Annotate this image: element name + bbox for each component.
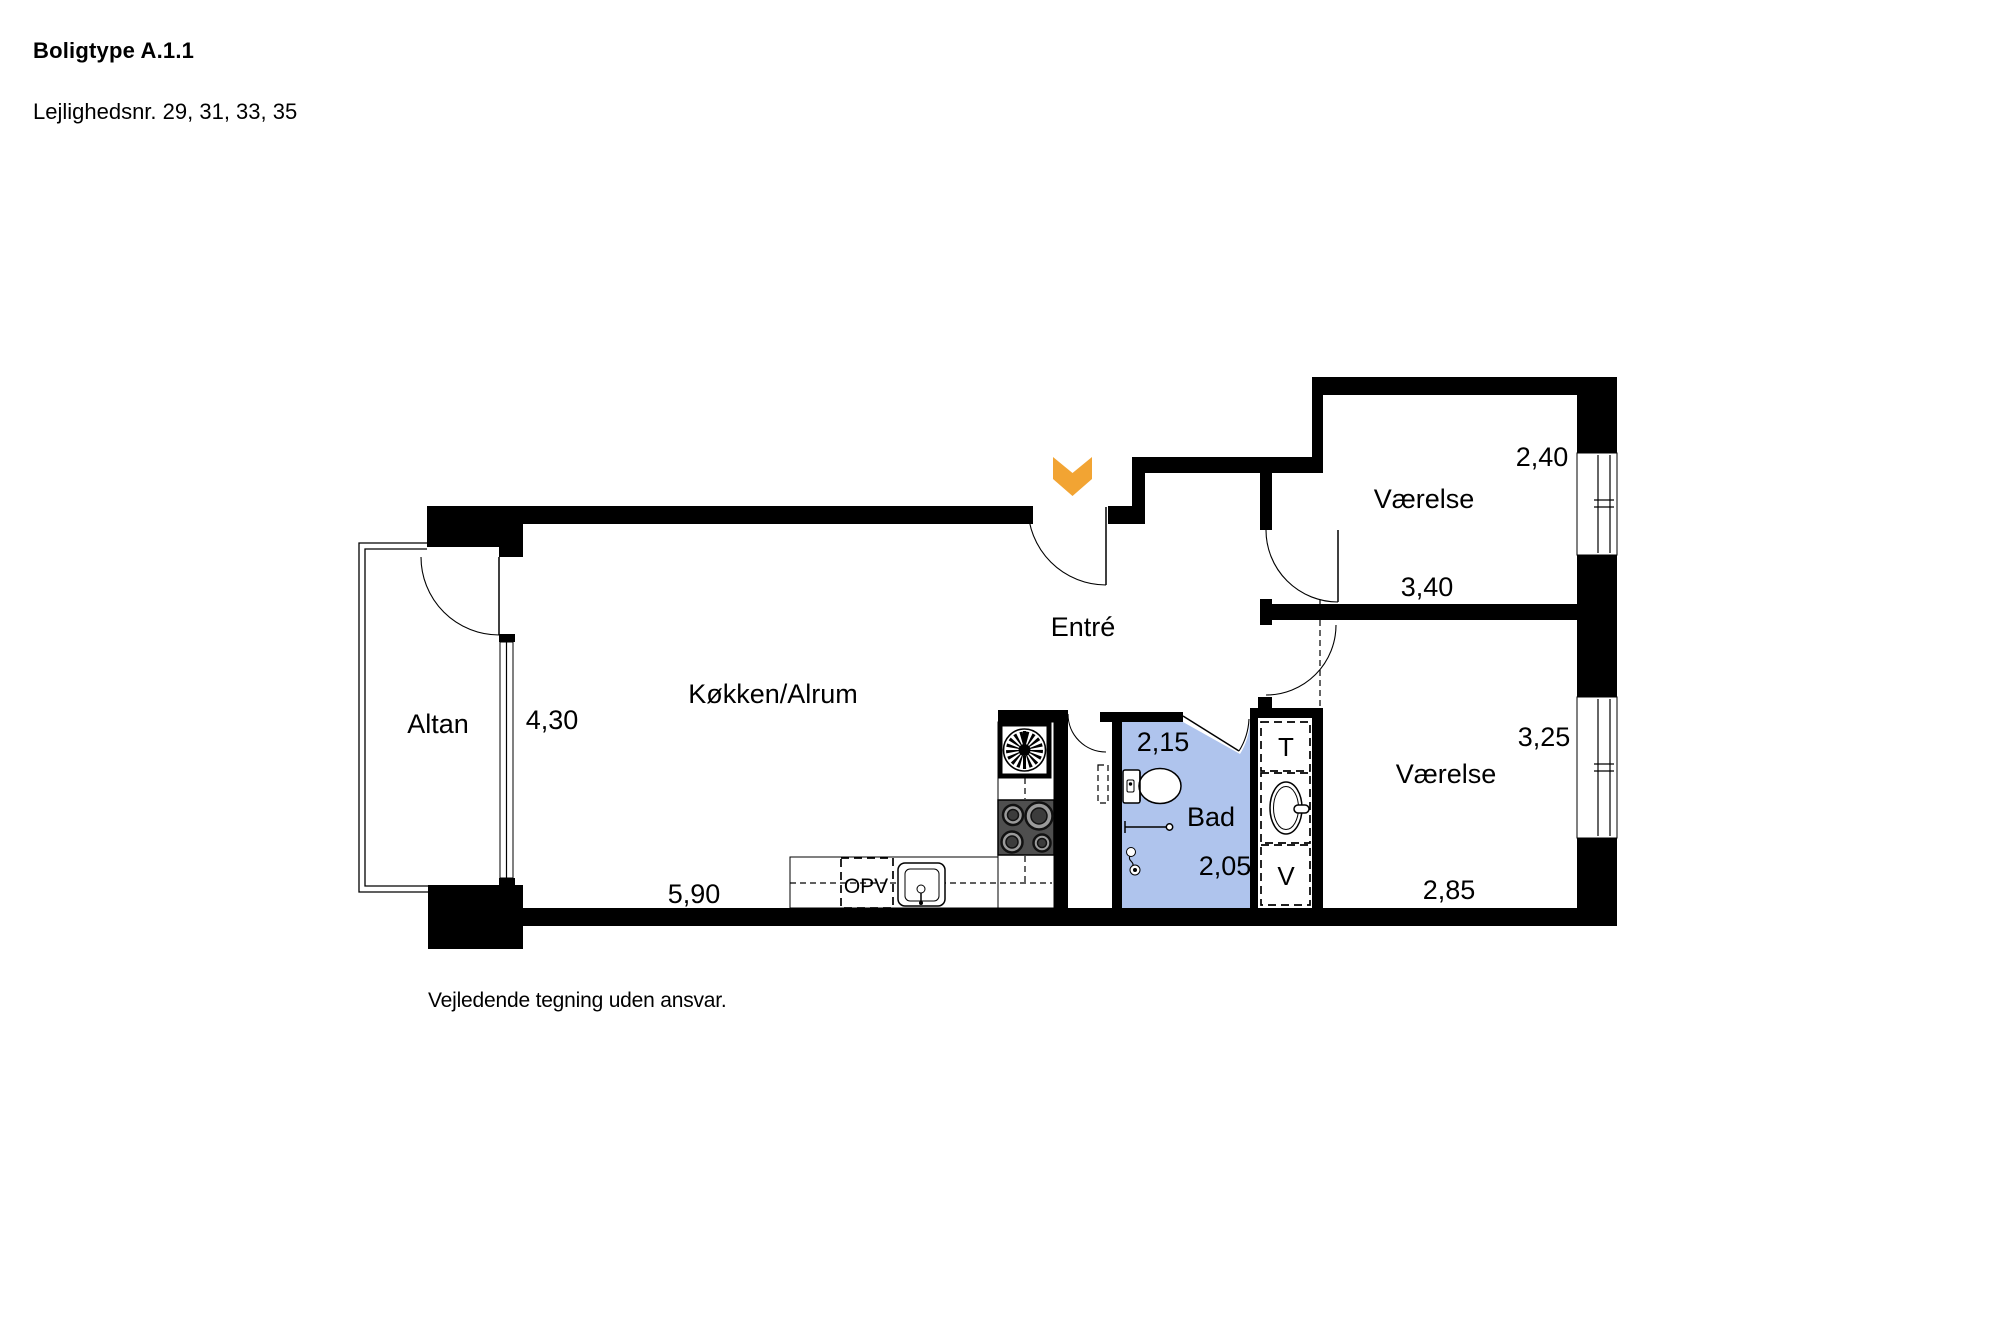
entrance-door <box>1028 507 1106 585</box>
label-bedroom-bottom: Værelse <box>1396 759 1497 789</box>
dim-bedroom-bottom-depth: 3,25 <box>1518 722 1571 752</box>
basin-tap <box>1294 805 1309 813</box>
window-bottom-right <box>1577 697 1617 838</box>
extractor-fan-icon <box>1000 724 1049 776</box>
dim-bad-width: 2,15 <box>1137 727 1190 757</box>
kitchen-sink-icon <box>898 863 945 906</box>
label-bad: Bad <box>1187 802 1235 832</box>
cooktop-icon <box>998 800 1054 855</box>
dim-kitchen-width: 5,90 <box>668 879 721 909</box>
floor-plan: Altan Køkken/Alrum Entré Bad Værelse Vær… <box>0 0 2000 1333</box>
label-altan: Altan <box>407 709 469 739</box>
door-swing-arc <box>1028 507 1106 585</box>
shower-rail-end <box>1166 824 1172 830</box>
dim-altan-depth: 4,30 <box>526 705 579 735</box>
burner-center <box>1008 810 1019 821</box>
mixer-base-dot <box>1133 868 1137 872</box>
toilet-icon <box>1123 769 1181 804</box>
niche <box>1068 714 1108 803</box>
door-swing-arc <box>1266 530 1338 602</box>
balcony-window <box>500 642 513 878</box>
dim-bad-depth: 2,05 <box>1199 851 1252 881</box>
window-recess <box>1577 453 1617 555</box>
burner-center <box>1031 808 1047 824</box>
burner-center <box>1038 839 1047 848</box>
balcony-door <box>421 557 499 635</box>
dim-bedroom-top-depth: 2,40 <box>1516 442 1569 472</box>
entrance-arrow-icon <box>1053 457 1092 496</box>
door-swing-arc <box>1266 625 1336 695</box>
toilet-flush <box>1127 780 1134 792</box>
toilet-bowl <box>1139 769 1181 804</box>
window-recess <box>1577 697 1617 838</box>
page: Boligtype A.1.1 Lejlighedsnr. 29, 31, 33… <box>0 0 2000 1333</box>
label-bedroom-top: Værelse <box>1374 484 1475 514</box>
door-swing-arc <box>421 557 499 635</box>
label-dishwasher: OPV <box>844 875 888 898</box>
sink-faucet-tip <box>919 901 923 905</box>
window-top-right <box>1577 453 1617 555</box>
label-entre: Entré <box>1051 612 1116 642</box>
label-closet-t: T <box>1278 732 1294 762</box>
label-closet-v: V <box>1277 861 1295 891</box>
burner-center <box>1006 836 1018 848</box>
toilet-flush-dot <box>1129 782 1132 785</box>
mixer-head <box>1127 848 1136 857</box>
dim-bedroom-top-width: 3,40 <box>1401 572 1454 602</box>
bedroom-top-door <box>1266 530 1338 602</box>
fan-hub <box>1019 744 1031 756</box>
niche-unit <box>1098 765 1108 803</box>
sink-faucet <box>917 885 925 893</box>
label-kitchen: Køkken/Alrum <box>688 679 858 709</box>
dim-bedroom-bottom-width: 2,85 <box>1423 875 1476 905</box>
